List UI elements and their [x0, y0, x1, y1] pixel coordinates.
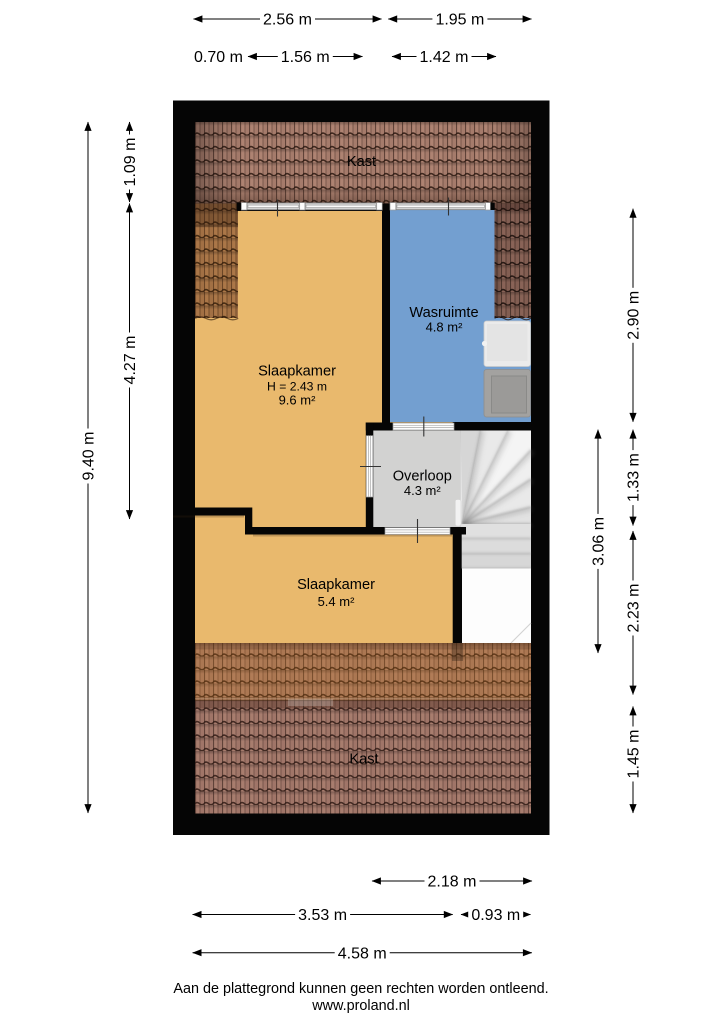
svg-text:Slaapkamer: Slaapkamer [297, 577, 375, 593]
svg-text:1.95 m: 1.95 m [435, 12, 484, 29]
svg-text:1.33 m: 1.33 m [626, 453, 643, 502]
svg-text:5.4 m²: 5.4 m² [318, 594, 356, 609]
svg-text:9.6 m²: 9.6 m² [279, 393, 317, 408]
svg-text:3.53 m: 3.53 m [298, 907, 347, 924]
svg-text:1.09 m: 1.09 m [122, 138, 139, 187]
svg-text:Kast: Kast [349, 752, 378, 768]
svg-text:3.06 m: 3.06 m [591, 517, 608, 566]
svg-text:4.3 m²: 4.3 m² [404, 483, 442, 498]
svg-text:4.58 m: 4.58 m [338, 945, 387, 962]
svg-text:1.45 m: 1.45 m [626, 730, 643, 779]
svg-text:H = 2.43 m: H = 2.43 m [267, 380, 327, 394]
svg-text:2.90 m: 2.90 m [626, 291, 643, 340]
svg-text:4.27 m: 4.27 m [122, 336, 139, 385]
svg-text:0.70 m: 0.70 m [194, 49, 243, 66]
svg-text:Aan de plattegrond kunnen geen: Aan de plattegrond kunnen geen rechten w… [173, 981, 548, 997]
svg-text:2.56 m: 2.56 m [263, 12, 312, 29]
svg-text:1.42 m: 1.42 m [420, 49, 469, 66]
svg-text:9.40 m: 9.40 m [81, 432, 98, 481]
svg-text:0.93 m: 0.93 m [471, 907, 520, 924]
svg-text:Slaapkamer: Slaapkamer [258, 364, 336, 380]
svg-text:4.8 m²: 4.8 m² [426, 319, 464, 334]
svg-text:1.56 m: 1.56 m [281, 49, 330, 66]
svg-text:www.proland.nl: www.proland.nl [311, 998, 410, 1014]
svg-text:2.18 m: 2.18 m [428, 874, 477, 891]
svg-text:Kast: Kast [347, 154, 376, 170]
svg-text:2.23 m: 2.23 m [626, 584, 643, 633]
